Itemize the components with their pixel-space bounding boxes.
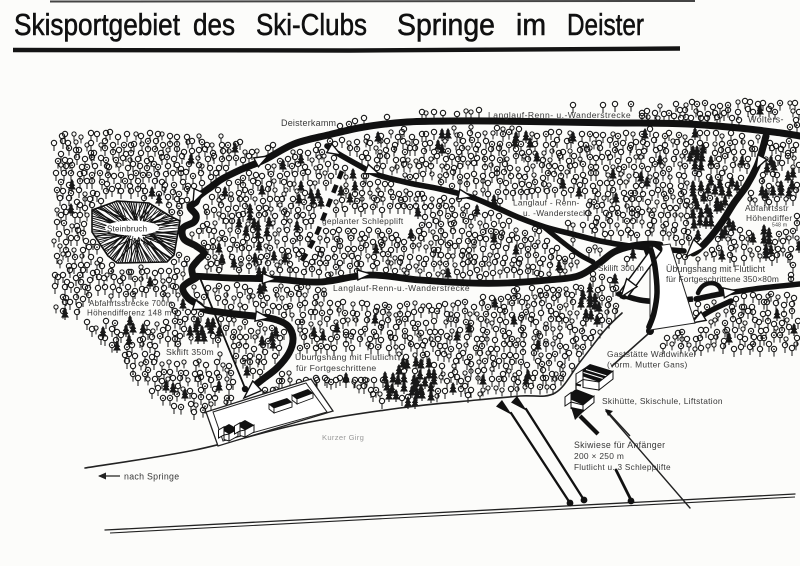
svg-text:nach Springe: nach Springe (124, 472, 179, 482)
svg-text:Skisportgebiet: Skisportgebiet (14, 8, 180, 42)
svg-text:200 × 250 m: 200 × 250 m (574, 451, 624, 461)
svg-text:geplanter Schlepplift: geplanter Schlepplift (322, 216, 404, 226)
svg-text:Langlauf - Renn-: Langlauf - Renn- (513, 198, 580, 208)
svg-text:Kurzer Girg: Kurzer Girg (322, 433, 364, 442)
svg-text:Skilift 300 m: Skilift 300 m (598, 264, 644, 273)
svg-text:Langlauf-Renn-u.-Wanderstrecke: Langlauf-Renn-u.-Wanderstrecke (333, 283, 470, 293)
svg-text:548 m: 548 m (772, 223, 787, 229)
svg-text:Deister: Deister (567, 8, 644, 42)
svg-text:(vorm. Mutter Gans): (vorm. Mutter Gans) (607, 360, 688, 370)
svg-text:Gaststätte Waldwinkel: Gaststätte Waldwinkel (607, 349, 696, 359)
svg-text:Deisterkamm: Deisterkamm (281, 118, 336, 128)
svg-text:Übungshang mit Flutlicht: Übungshang mit Flutlicht (666, 264, 766, 274)
svg-text:Springe: Springe (397, 8, 495, 42)
svg-text:Abfahrtsstrecke 700m: Abfahrtsstrecke 700m (89, 299, 173, 308)
svg-text:Abfahrtsstr: Abfahrtsstr (745, 203, 789, 213)
svg-text:Langlauf-Renn- u.-Wanderstreck: Langlauf-Renn- u.-Wanderstrecke (488, 110, 631, 120)
svg-text:Skihütte, Skischule, Liftstati: Skihütte, Skischule, Liftstation (602, 396, 723, 406)
svg-text:Höhendifferenz 148 m: Höhendifferenz 148 m (87, 309, 172, 318)
svg-text:Übungshang mit Flutlicht: Übungshang mit Flutlicht (295, 352, 397, 362)
svg-text:Skilift 350m: Skilift 350m (166, 347, 214, 357)
svg-text:Skiwiese für Anfänger: Skiwiese für Anfänger (574, 440, 665, 450)
svg-text:Steinbruch: Steinbruch (107, 225, 147, 234)
svg-text:Höhendiffer: Höhendiffer (746, 213, 792, 223)
svg-text:Wolters-: Wolters- (748, 115, 784, 125)
svg-text:für Fortgeschrittene 350×80m: für Fortgeschrittene 350×80m (666, 274, 779, 284)
svg-text:Ski-Clubs: Ski-Clubs (256, 8, 367, 42)
svg-text:Flutlicht u. 3 Schlepplifte: Flutlicht u. 3 Schlepplifte (574, 463, 671, 472)
svg-text:für Fortgeschrittene: für Fortgeschrittene (296, 363, 377, 373)
svg-text:im: im (516, 8, 546, 42)
svg-text:des: des (193, 8, 235, 42)
svg-text:u. -Wanderstecke: u. -Wanderstecke (523, 208, 593, 218)
